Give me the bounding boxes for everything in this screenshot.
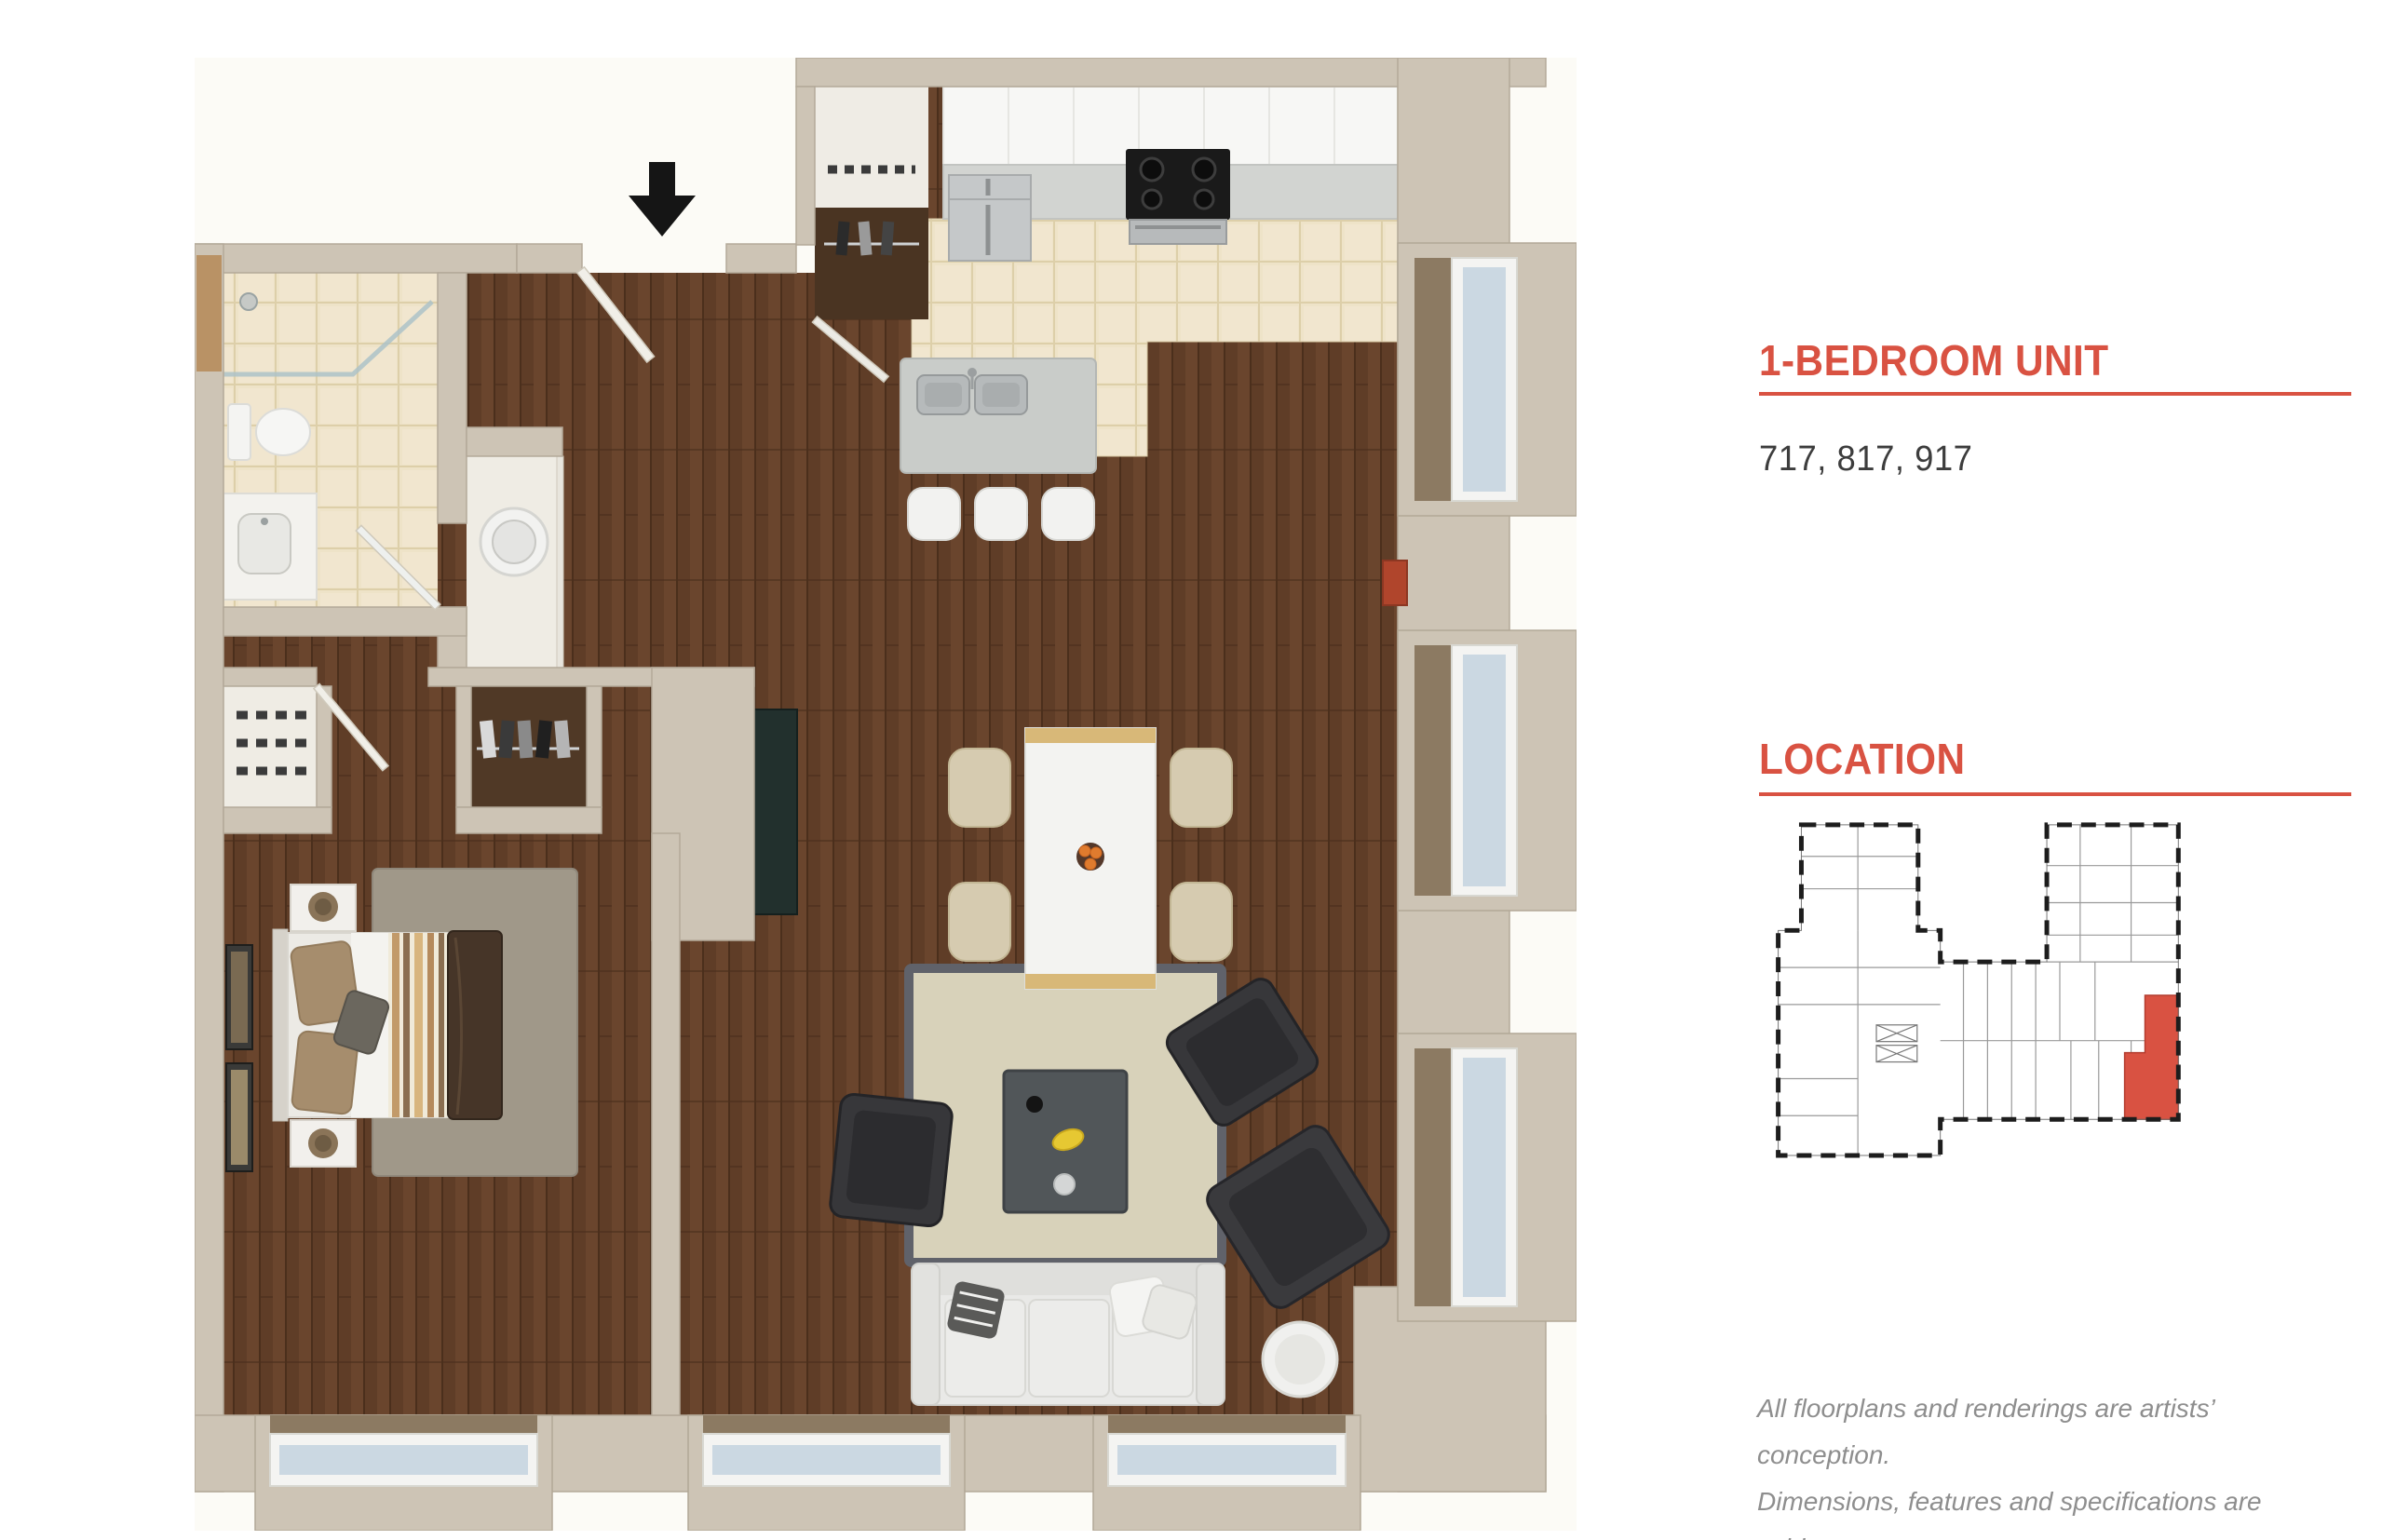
fridge xyxy=(949,175,1031,261)
window-right-1 xyxy=(1398,243,1577,516)
laundry-door xyxy=(557,456,563,668)
disclaimer-line-2: Dimensions, features and specifications … xyxy=(1757,1479,2279,1540)
walkin-closet xyxy=(477,720,579,758)
armchair-left xyxy=(829,1093,953,1227)
window-right-3 xyxy=(1398,1033,1577,1321)
window-bottom-2 xyxy=(688,1415,965,1531)
floorplan-render xyxy=(195,58,1577,1531)
location-title: LOCATION xyxy=(1759,734,1966,784)
stove xyxy=(1126,149,1230,244)
media-console xyxy=(754,709,797,914)
window-bottom-3 xyxy=(1093,1415,1360,1531)
toilet xyxy=(228,404,310,460)
bed xyxy=(273,929,502,1121)
coffee-table xyxy=(1004,1071,1127,1212)
side-table xyxy=(1263,1322,1337,1397)
sofa xyxy=(912,1263,1225,1405)
disclaimer-line-1: All floorplans and renderings are artist… xyxy=(1757,1385,2279,1479)
location-diagram xyxy=(1765,810,2349,1162)
nightstand-top xyxy=(291,885,356,931)
bottom-windows xyxy=(255,1415,1360,1531)
window-right-2 xyxy=(1398,630,1577,911)
window-bottom-1 xyxy=(255,1415,552,1531)
kitchen-island xyxy=(900,358,1096,473)
floorplate xyxy=(1779,825,2179,1155)
unit-title: 1-BEDROOM UNIT xyxy=(1759,335,2109,385)
brochure-page: 1-BEDROOM UNIT 717, 817, 917 LOCATION xyxy=(0,0,2382,1540)
shower-head xyxy=(240,293,257,310)
title-rule xyxy=(1759,392,2351,396)
location-diagram-svg xyxy=(1765,810,2349,1162)
vanity xyxy=(223,493,317,600)
floorplan-svg xyxy=(195,58,1577,1531)
disclaimer: All floorplans and renderings are artist… xyxy=(1757,1385,2279,1540)
coat-closet-floor xyxy=(815,208,928,319)
shoe-alcove-floor xyxy=(815,87,928,208)
right-windows xyxy=(1398,243,1577,1321)
unit-numbers: 717, 817, 917 xyxy=(1759,439,1972,480)
wall-panel xyxy=(1383,561,1407,605)
location-rule xyxy=(1759,792,2351,796)
nightstand-bottom xyxy=(291,1120,356,1167)
wall-niche xyxy=(196,255,222,371)
bar-stools xyxy=(908,488,1094,540)
